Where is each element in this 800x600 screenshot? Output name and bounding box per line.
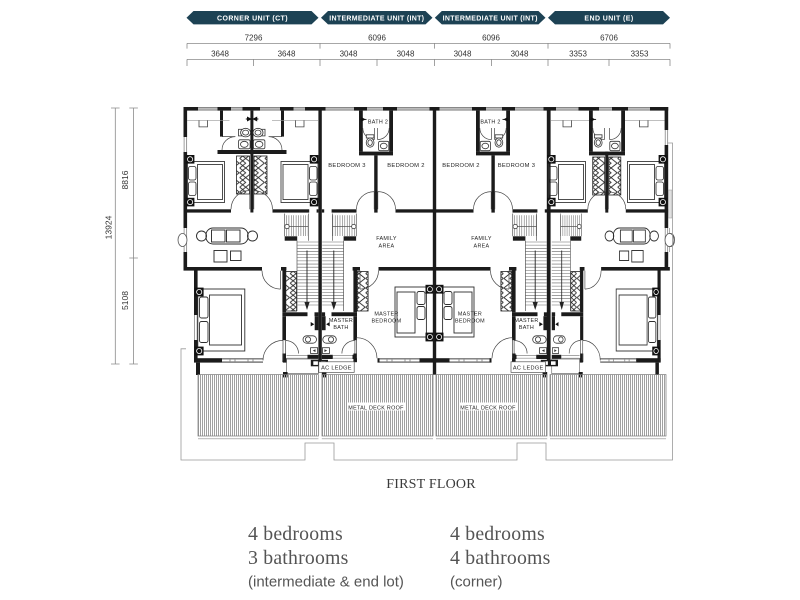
svg-text:FAMILY: FAMILY bbox=[376, 236, 397, 242]
svg-text:MASTER: MASTER bbox=[374, 312, 398, 318]
svg-text:BATH: BATH bbox=[333, 325, 348, 331]
svg-text:BEDROOM 2: BEDROOM 2 bbox=[387, 163, 425, 169]
svg-text:3048: 3048 bbox=[340, 50, 358, 59]
svg-text:BEDROOM: BEDROOM bbox=[455, 319, 485, 325]
svg-text:INTERMEDIATE UNIT (INT): INTERMEDIATE UNIT (INT) bbox=[329, 16, 424, 23]
svg-text:MASTER: MASTER bbox=[329, 318, 353, 324]
svg-text:6706: 6706 bbox=[600, 34, 618, 43]
svg-text:3048: 3048 bbox=[397, 50, 415, 59]
svg-text:BATH: BATH bbox=[519, 325, 534, 331]
svg-text:FIRST FLOOR: FIRST FLOOR bbox=[386, 477, 476, 492]
svg-text:6096: 6096 bbox=[482, 34, 500, 43]
svg-text:BATH 2: BATH 2 bbox=[480, 120, 500, 126]
svg-text:FAMILY: FAMILY bbox=[471, 236, 492, 242]
svg-text:AC LEDGE: AC LEDGE bbox=[513, 366, 544, 372]
svg-text:3048: 3048 bbox=[454, 50, 472, 59]
svg-text:BEDROOM 3: BEDROOM 3 bbox=[328, 163, 366, 169]
svg-text:AC LEDGE: AC LEDGE bbox=[321, 366, 352, 372]
svg-text:BEDROOM 2: BEDROOM 2 bbox=[442, 163, 480, 169]
svg-text:8816: 8816 bbox=[120, 170, 130, 189]
svg-text:MASTER: MASTER bbox=[514, 318, 538, 324]
svg-text:3648: 3648 bbox=[278, 50, 296, 59]
svg-text:BEDROOM: BEDROOM bbox=[372, 319, 402, 325]
svg-text:CORNER UNIT (CT): CORNER UNIT (CT) bbox=[217, 16, 288, 23]
svg-text:5108: 5108 bbox=[120, 291, 130, 310]
svg-text:3048: 3048 bbox=[511, 50, 529, 59]
svg-text:BEDROOM 3: BEDROOM 3 bbox=[498, 163, 536, 169]
svg-text:3353: 3353 bbox=[631, 50, 649, 59]
svg-text:3 bathrooms: 3 bathrooms bbox=[248, 547, 349, 569]
svg-text:AREA: AREA bbox=[379, 244, 395, 250]
svg-text:BATH 2: BATH 2 bbox=[368, 120, 388, 126]
svg-text:6096: 6096 bbox=[368, 34, 386, 43]
svg-text:7296: 7296 bbox=[245, 34, 263, 43]
svg-text:3353: 3353 bbox=[569, 50, 587, 59]
svg-text:METAL DECK ROOF: METAL DECK ROOF bbox=[460, 406, 516, 412]
svg-text:MASTER: MASTER bbox=[458, 312, 482, 318]
svg-text:4 bedrooms: 4 bedrooms bbox=[450, 523, 545, 545]
svg-text:INTERMEDIATE UNIT (INT): INTERMEDIATE UNIT (INT) bbox=[443, 16, 538, 23]
svg-text:AREA: AREA bbox=[474, 244, 490, 250]
svg-text:END UNIT (E): END UNIT (E) bbox=[584, 16, 633, 23]
svg-text:3648: 3648 bbox=[211, 50, 229, 59]
svg-text:4 bathrooms: 4 bathrooms bbox=[450, 547, 551, 569]
svg-text:13924: 13924 bbox=[104, 215, 114, 239]
svg-text:METAL DECK ROOF: METAL DECK ROOF bbox=[348, 406, 404, 412]
svg-text:4 bedrooms: 4 bedrooms bbox=[248, 523, 343, 545]
svg-text:(corner): (corner) bbox=[450, 574, 503, 591]
svg-text:(intermediate & end lot): (intermediate & end lot) bbox=[248, 574, 404, 591]
